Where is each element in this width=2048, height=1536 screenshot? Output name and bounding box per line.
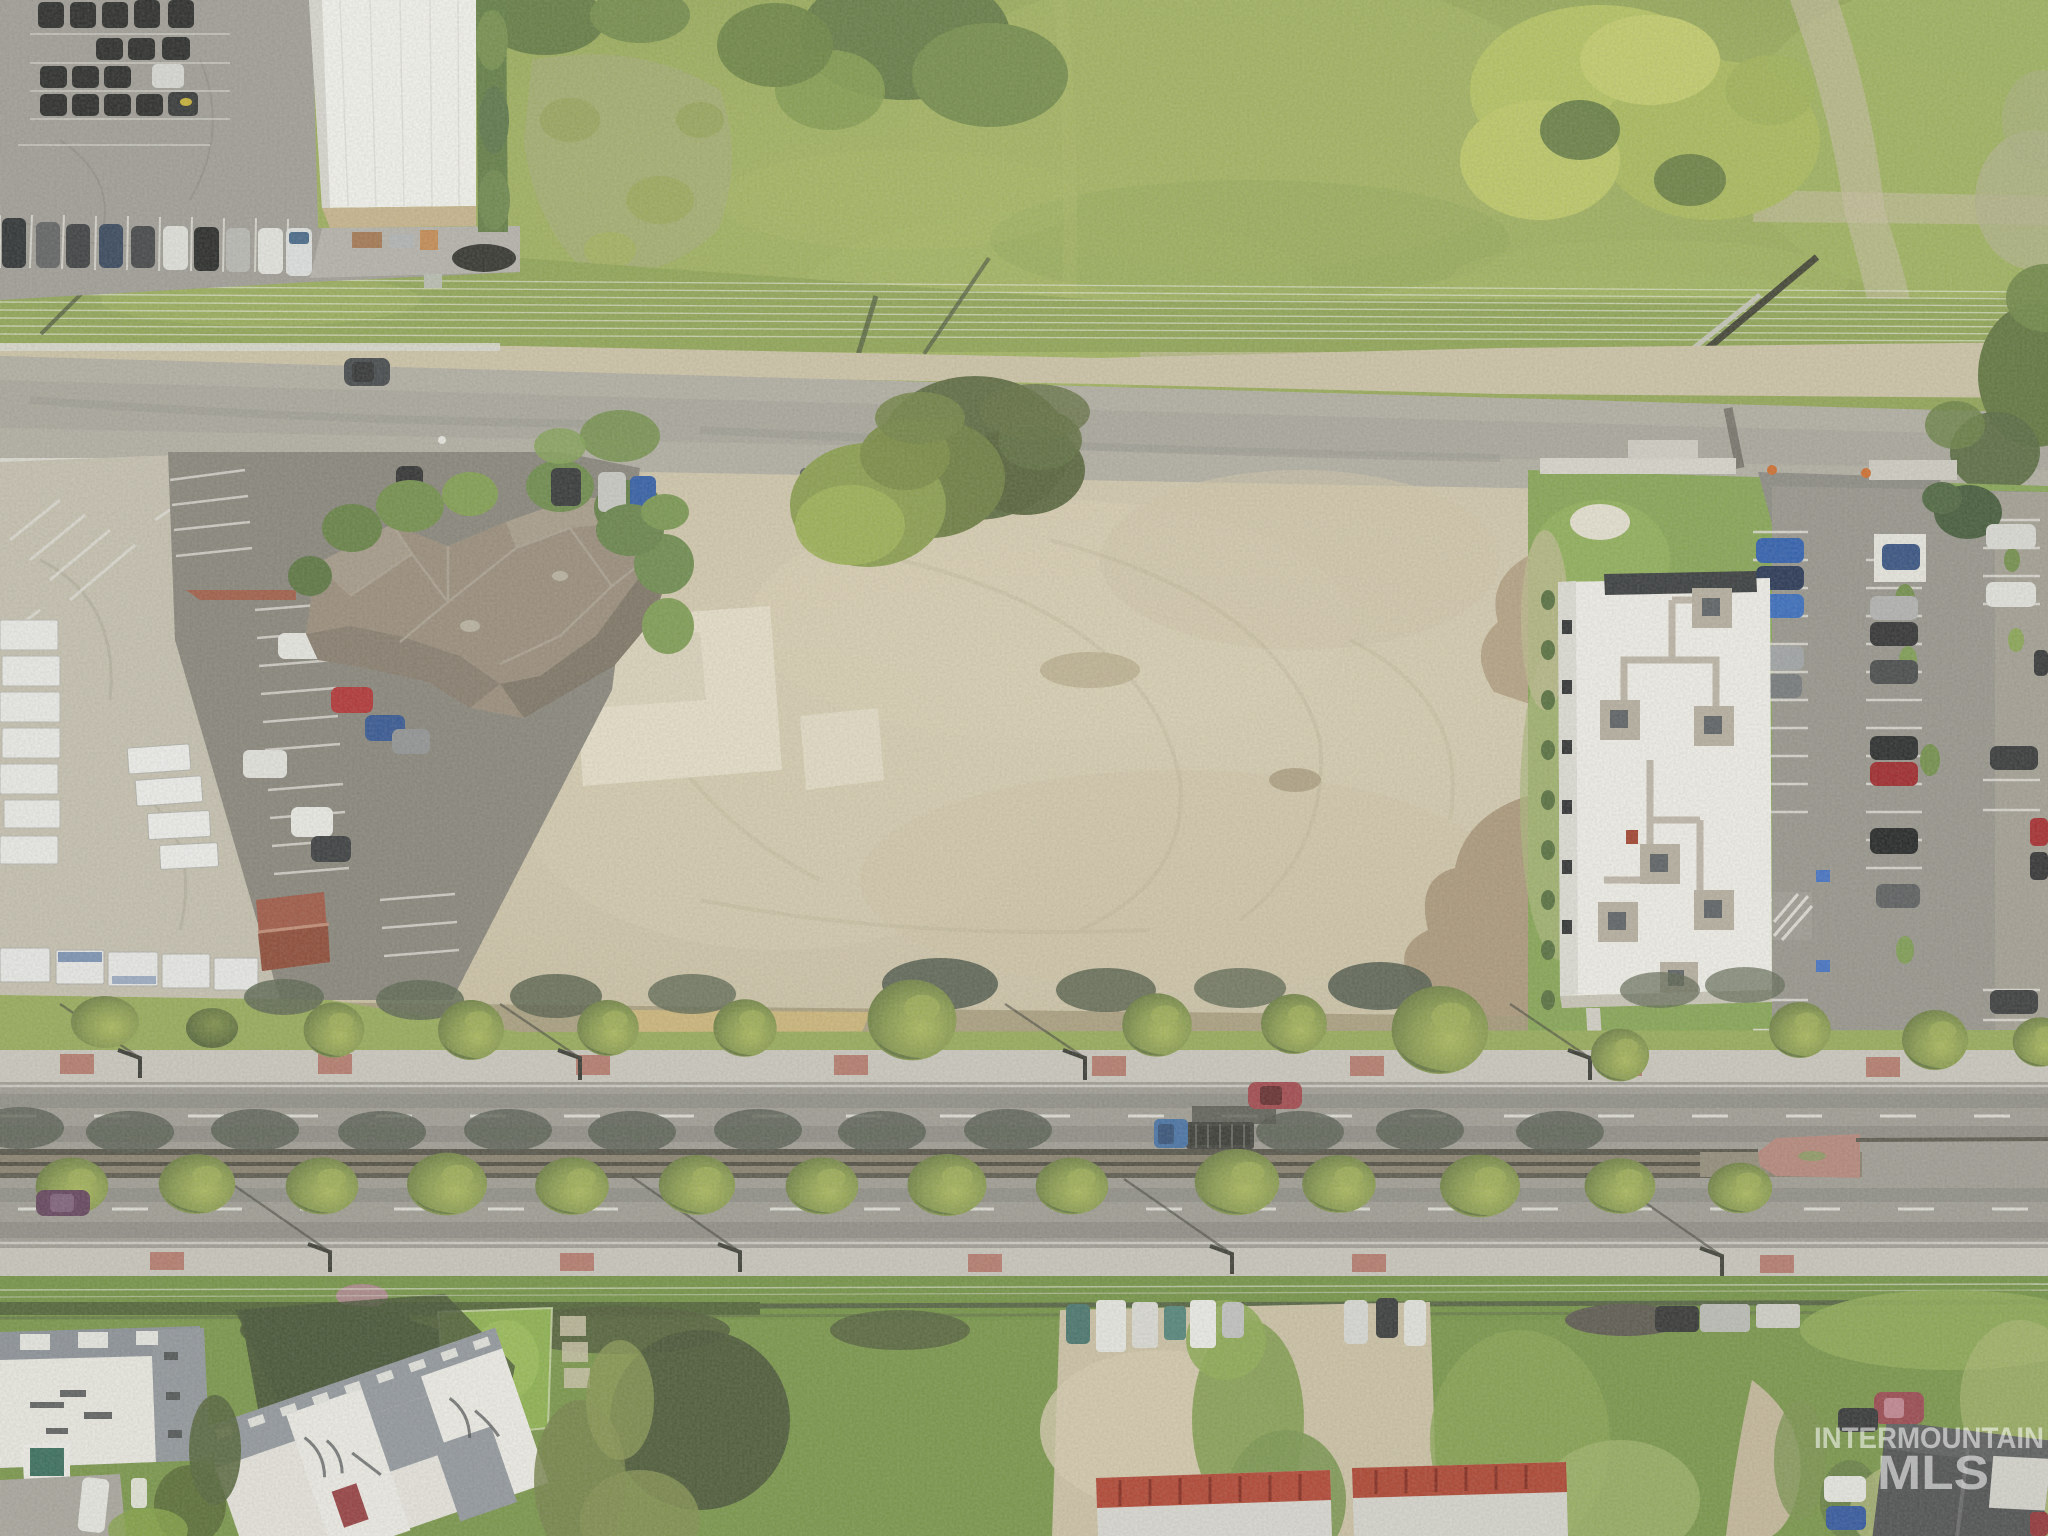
svg-text:MLS: MLS — [1877, 1447, 1989, 1500]
